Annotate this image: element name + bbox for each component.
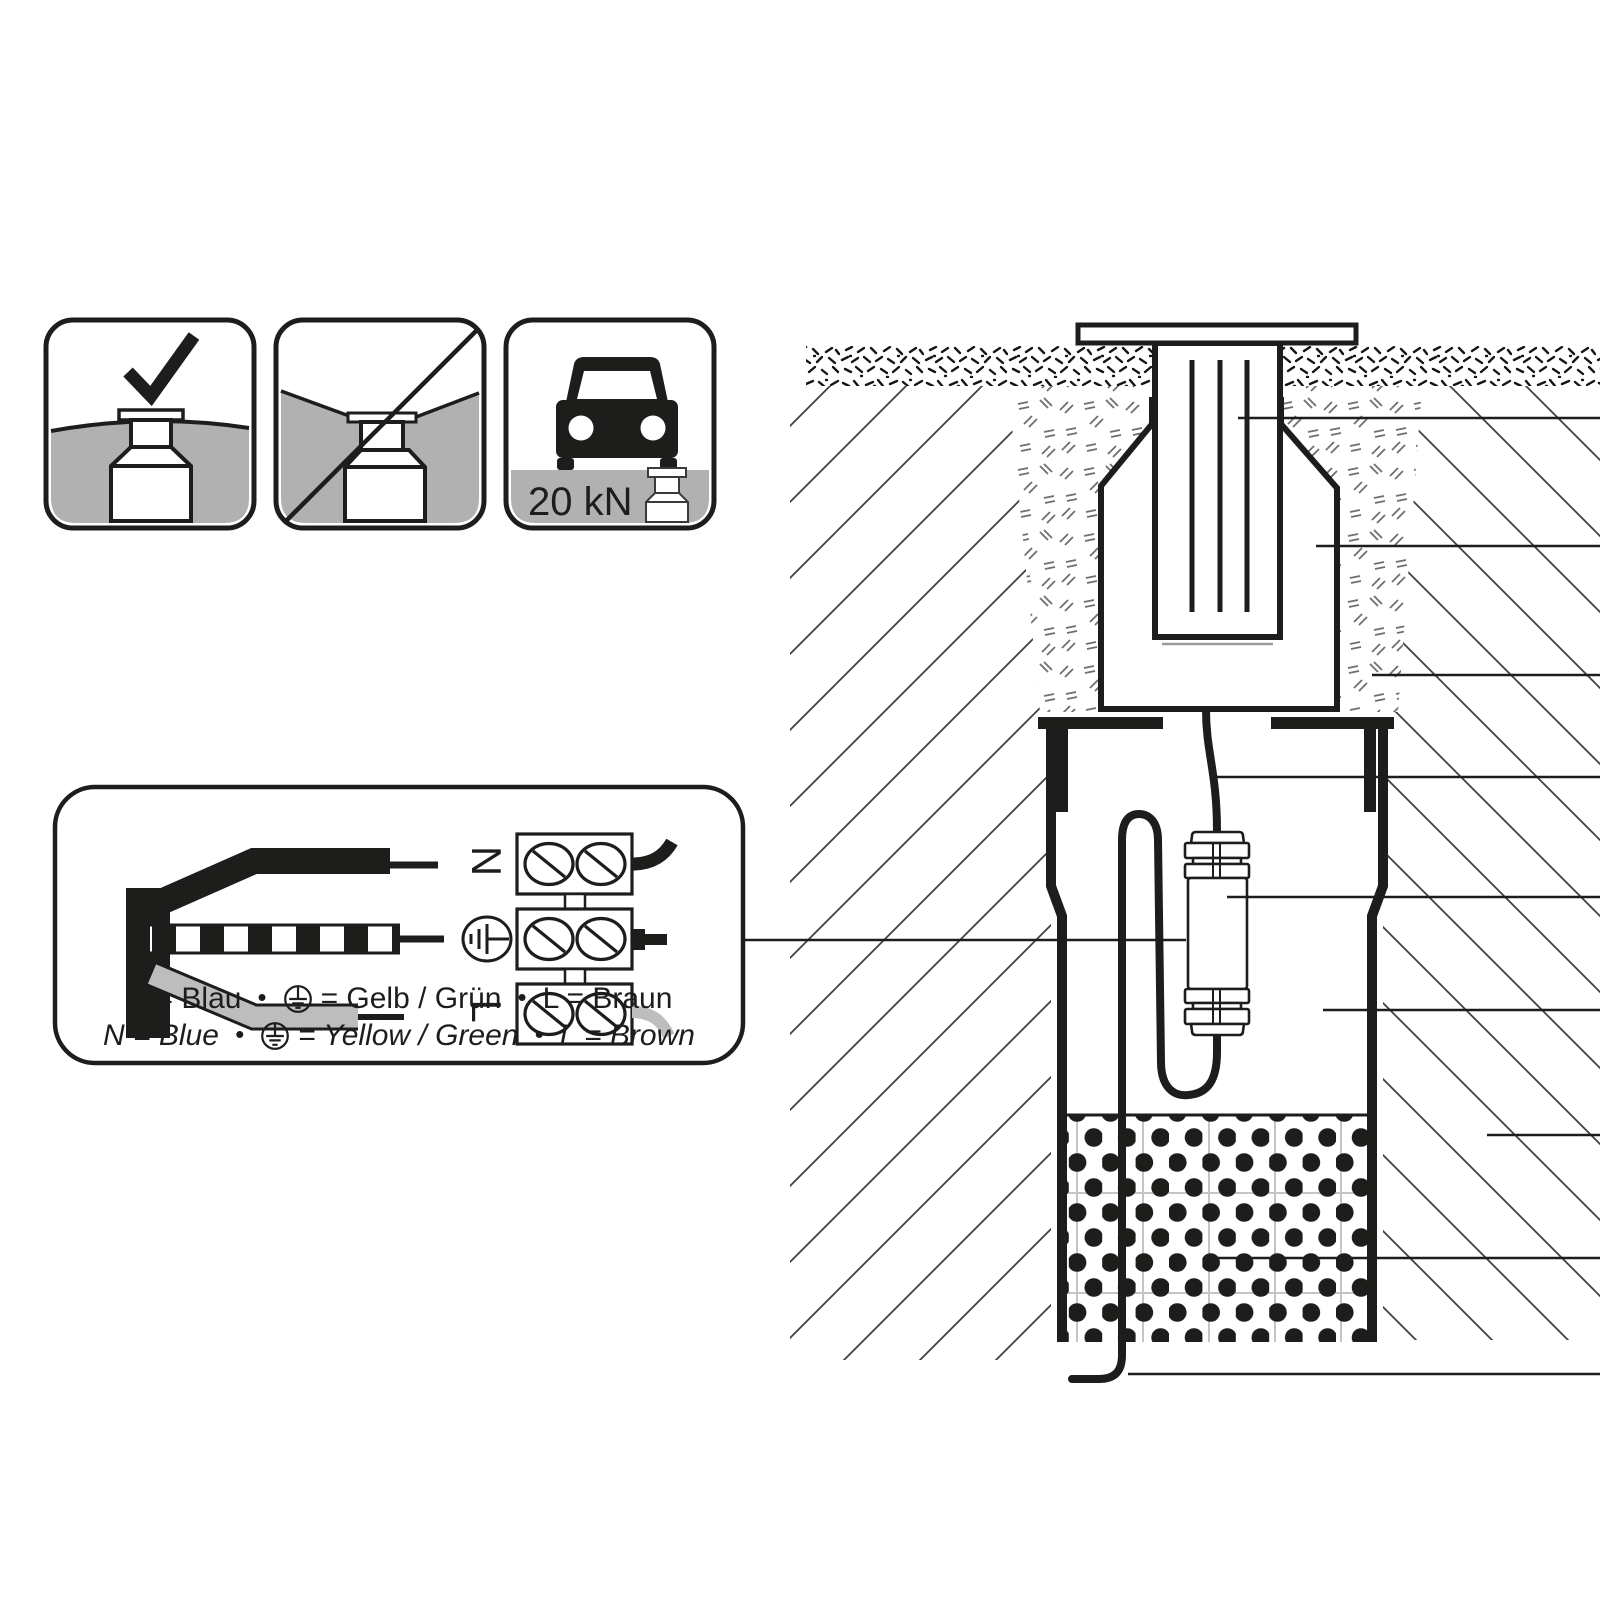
legend-en-bullet-2: •	[534, 1017, 543, 1051]
cable-connector	[1185, 832, 1249, 1035]
cross-section-diagram	[743, 325, 1600, 1379]
legend-en-l: L = Brown	[560, 1019, 695, 1053]
legend-de-pe: = Gelb / Grün	[321, 982, 502, 1016]
luminaire-insert	[1155, 343, 1280, 644]
wiring-legend-de: N = Blau•= Gelb / Grün•L = Braun	[55, 980, 743, 1016]
legend-en-pe: = Yellow / Green	[298, 1019, 518, 1053]
earth-symbol-icon	[260, 1021, 290, 1051]
pictogram-forbidden	[276, 320, 484, 528]
gravel-drainage	[1067, 1115, 1367, 1342]
cover-flange	[1078, 325, 1356, 343]
legend-de-bullet-2: •	[518, 980, 527, 1014]
legend-de-l: L = Braun	[543, 982, 673, 1016]
soil-hatch-left	[790, 386, 1051, 1360]
installation-tube-wall-right	[1372, 729, 1383, 1342]
legend-de-bullet-1: •	[257, 980, 266, 1014]
legend-en-n: N = Blue	[103, 1019, 219, 1053]
earth-symbol-icon	[283, 984, 313, 1014]
car-icon	[556, 357, 678, 470]
luminaire-icon	[646, 468, 688, 522]
pictogram-allowed	[46, 320, 254, 528]
pictogram-drive-over: 20 kN	[506, 320, 714, 528]
load-rating-label: 20 kN	[528, 480, 633, 524]
soil-hatch-right	[1383, 386, 1600, 1340]
legend-en-bullet-1: •	[235, 1017, 244, 1051]
terminal-label-n: N	[463, 846, 510, 876]
wiring-legend-en: N = Blue•= Yellow / Green•L = Brown	[55, 1017, 743, 1053]
diagram-canvas: 20 kN N	[0, 0, 1600, 1600]
legend-de-n: N = Blau	[126, 982, 242, 1016]
installation-tube-wall-left	[1051, 729, 1062, 1342]
installation-manual-page: 20 kN N	[0, 0, 1600, 1600]
